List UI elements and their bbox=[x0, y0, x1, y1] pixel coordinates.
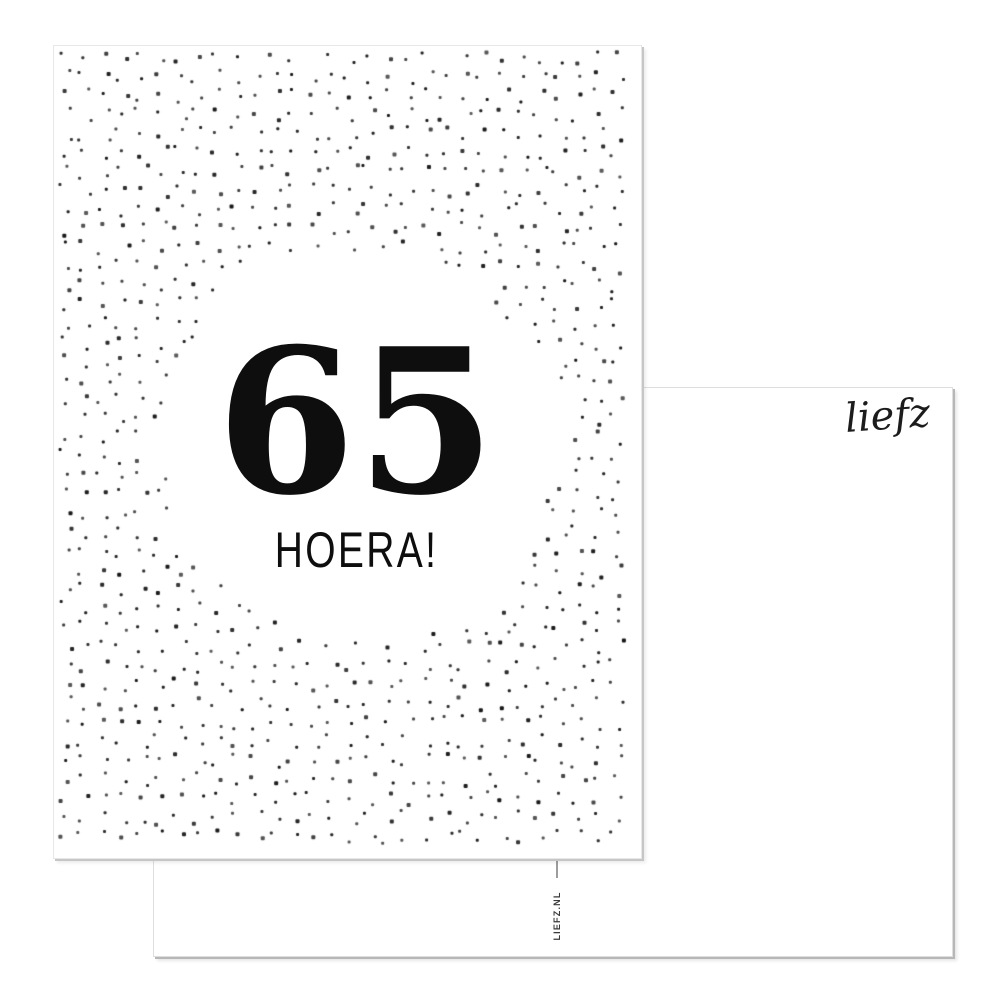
product-image-scene: liefz LIEFZ.NL 65 HOERA! bbox=[0, 0, 1000, 1000]
liefz-script-logo: liefz bbox=[843, 391, 931, 441]
front-card-number: 65 bbox=[63, 323, 650, 523]
hoera-caption: HOERA! bbox=[128, 525, 586, 575]
front-card: 65 HOERA! bbox=[53, 45, 642, 859]
divider-tick-line bbox=[556, 861, 558, 878]
liefz-url-vertical-text: LIEFZ.NL bbox=[551, 881, 563, 951]
